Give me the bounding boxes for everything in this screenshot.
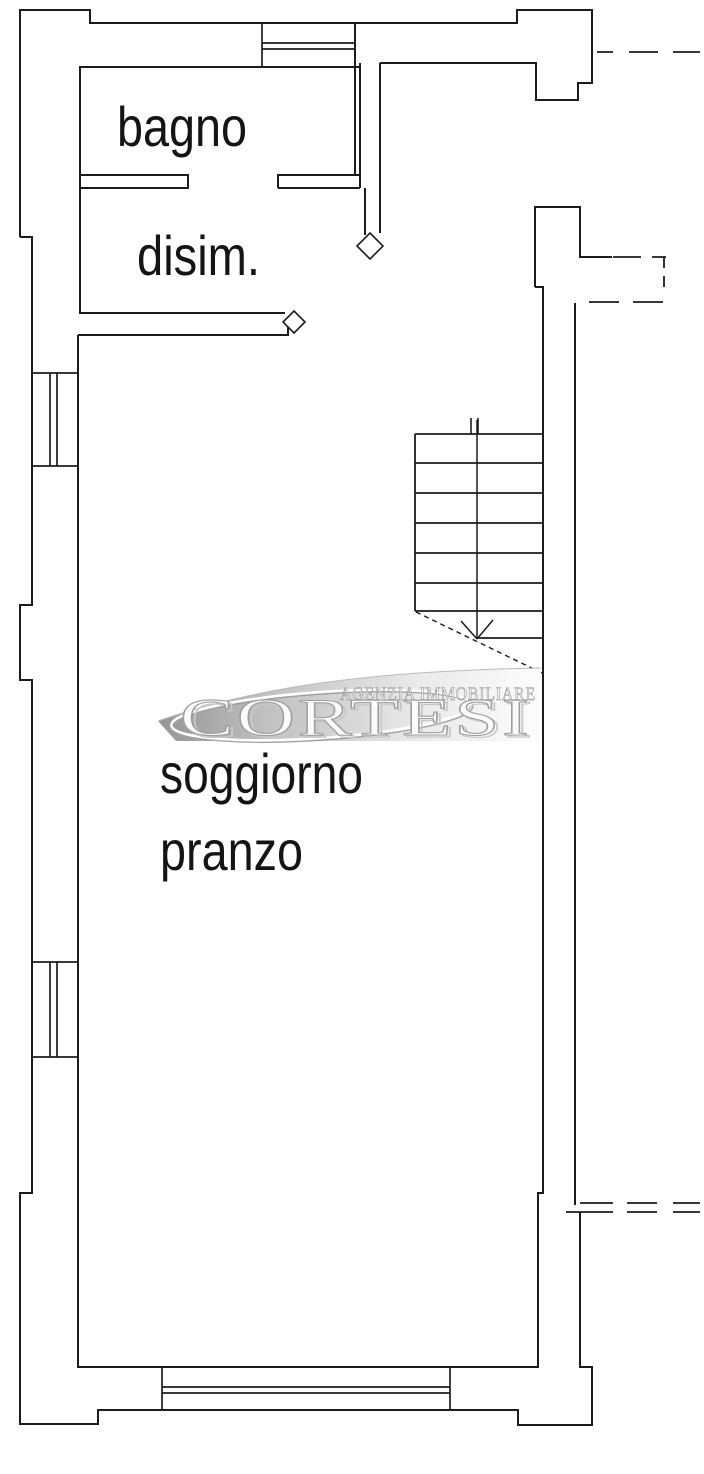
stairs-cut-line <box>416 612 542 673</box>
door-leaf-disim-stairwell <box>357 233 383 259</box>
door-symbols <box>283 233 383 333</box>
inner-wall-disim-bottom-lower <box>78 323 288 335</box>
dashed-projection-lines <box>566 52 704 1212</box>
outer-wall-terrace-piece <box>535 207 612 287</box>
floor-plan-page: AGENZIA IMMOBILIARE CORTESI CORTESI bagn… <box>0 0 704 1474</box>
outer-wall-top <box>20 10 592 237</box>
room-label-disim: disim. <box>137 224 260 287</box>
window-top <box>262 23 355 67</box>
window-left-lower <box>32 962 78 1057</box>
stairs <box>415 418 543 673</box>
watermark-brand-text: CORTESI <box>180 689 532 747</box>
room-label-pranzo: pranzo <box>160 819 303 882</box>
room-label-soggiorno: soggiorno <box>160 742 363 805</box>
agency-watermark: AGENZIA IMMOBILIARE CORTESI CORTESI <box>158 668 541 750</box>
window-bottom <box>162 1367 450 1410</box>
stair-direction-arrow <box>461 420 493 639</box>
floor-plan-drawing: AGENZIA IMMOBILIARE CORTESI CORTESI bagn… <box>0 0 704 1474</box>
inner-wall-soggiorno <box>78 287 543 1367</box>
window-left-upper <box>32 373 78 466</box>
stairs-treads <box>415 434 543 638</box>
room-labels: bagno disim. soggiorno pranzo <box>117 95 363 882</box>
room-label-bagno: bagno <box>117 95 247 158</box>
outer-wall-left-bottom <box>20 237 592 1425</box>
door-leaf-disim-soggiorno <box>283 311 305 333</box>
inner-wall-bagno-bottom-left <box>80 175 188 188</box>
inner-wall-bagno-bottom-right <box>278 175 360 188</box>
